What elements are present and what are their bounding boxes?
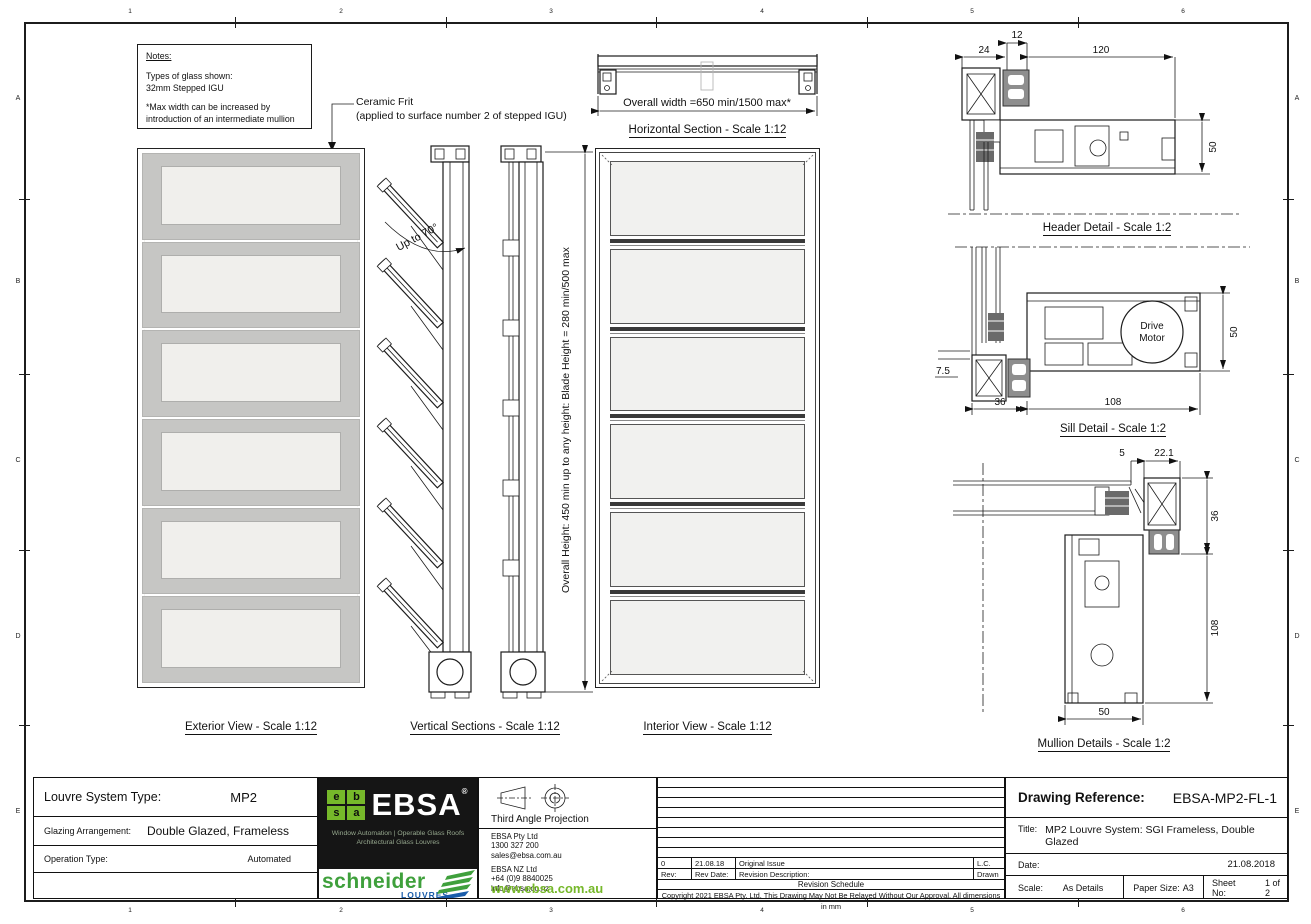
- rev-number: 0: [658, 858, 692, 869]
- scale-label: Scale:: [1006, 883, 1043, 893]
- svg-text:5: 5: [1119, 448, 1125, 459]
- grid-col-label: 1: [124, 8, 136, 15]
- operation-value: Automated: [108, 854, 317, 864]
- notes-line: Types of glass shown:: [146, 71, 303, 82]
- notes-title: Notes:: [146, 51, 303, 62]
- vision-glass: [161, 432, 341, 491]
- open-blade: [377, 338, 444, 430]
- revision-empty-row: [658, 808, 1004, 818]
- header-detail-label: Header Detail - Scale 1:2: [1007, 222, 1207, 234]
- mullion-details-label: Mullion Details - Scale 1:2: [1004, 738, 1204, 750]
- grid-row-label: A: [12, 95, 24, 102]
- revision-row-0: 0 21.08.18 Original Issue L.C.: [658, 858, 1004, 869]
- sill-detail-label: Sill Detail - Scale 1:2: [1013, 423, 1213, 435]
- louvre-blade: [142, 419, 360, 506]
- drawing-reference-label: Drawing Reference:: [1006, 790, 1145, 805]
- contact-au-name: EBSA Pty Ltd: [491, 832, 562, 841]
- grid-row-label: C: [1291, 457, 1303, 464]
- svg-text:120: 120: [1093, 45, 1110, 56]
- title-label: Title:: [1006, 824, 1037, 834]
- grid-tick: [446, 17, 447, 28]
- sheet-no-label: Sheet No:: [1204, 878, 1251, 898]
- svg-text:12: 12: [1011, 30, 1023, 41]
- ebsa-glyph-logo: eb sa: [327, 790, 365, 820]
- grid-col-label: 5: [966, 907, 978, 914]
- grid-tick: [1283, 550, 1294, 551]
- rev-by: L.C.: [974, 858, 1004, 869]
- revision-empty-row: [658, 778, 1004, 788]
- louvre-blade: [142, 153, 360, 240]
- grid-tick: [1078, 17, 1079, 28]
- overall-width-dim: Overall width =650 min/1500 max*: [623, 97, 792, 109]
- svg-text:50: 50: [1098, 707, 1110, 718]
- louvre-blade: [142, 508, 360, 595]
- grid-row-label: B: [12, 278, 24, 285]
- horizontal-section-label: Horizontal Section - Scale 1:12: [590, 124, 825, 136]
- svg-text:36: 36: [1210, 510, 1221, 522]
- glazing-label: Glazing Arrangement:: [34, 826, 131, 836]
- grid-col-label: 2: [335, 8, 347, 15]
- operation-label: Operation Type:: [34, 854, 108, 864]
- revision-empty-row: [658, 798, 1004, 808]
- svg-text:22.1: 22.1: [1154, 448, 1174, 459]
- revision-empty-row: [658, 838, 1004, 848]
- svg-text:7.5: 7.5: [936, 366, 950, 377]
- horizontal-section-drawing: Overall width =650 min/1500 max*: [590, 48, 825, 123]
- overall-height-label: Overall Height: 450 min up to any height…: [560, 160, 575, 680]
- grid-col-label: 4: [756, 8, 768, 15]
- svg-text:50: 50: [1229, 326, 1240, 338]
- vision-glass: [161, 166, 341, 225]
- drawn-label: Drawn: [974, 869, 1004, 880]
- revision-header-row: Rev: Rev Date: Revision Description: Dra…: [658, 869, 1004, 880]
- svg-text:108: 108: [1105, 397, 1122, 408]
- grid-col-label: 4: [756, 907, 768, 914]
- grid-col-label: 3: [545, 8, 557, 15]
- grid-row-label: D: [1291, 633, 1303, 640]
- reference-block: Drawing Reference: EBSA-MP2-FL-1 Title: …: [1005, 777, 1288, 899]
- grid-col-label: 3: [545, 907, 557, 914]
- notes-line: introduction of an intermediate mullion: [146, 114, 303, 125]
- grid-col-label: 1: [124, 907, 136, 914]
- open-blade: [377, 258, 444, 350]
- notes-box: Notes: Types of glass shown: 32mm Steppe…: [137, 44, 312, 129]
- rev-date: 21.08.18: [692, 858, 736, 869]
- grid-tick: [1283, 725, 1294, 726]
- revision-schedule-caption: Revision Schedule: [658, 880, 1004, 890]
- open-blade: [377, 498, 444, 590]
- notes-line: 32mm Stepped IGU: [146, 83, 303, 94]
- drive-motor-label: Drive: [1140, 321, 1164, 332]
- ebsa-wordmark: EBSA®: [371, 787, 468, 823]
- interior-view-label: Interior View - Scale 1:12: [595, 721, 820, 733]
- vision-glass: [161, 521, 341, 580]
- drive-motor-label: Motor: [1139, 333, 1165, 344]
- svg-text:36: 36: [994, 397, 1006, 408]
- mullion-details-drawing: 5 22.1: [945, 443, 1275, 743]
- svg-text:50: 50: [1208, 141, 1219, 153]
- scale-value: As Details: [1063, 883, 1104, 893]
- projection-contact-block: Third Angle Projection EBSA Pty Ltd 1300…: [478, 777, 657, 899]
- louvre-system-label: Louvre System Type:: [34, 790, 161, 804]
- louvre-blade: [142, 596, 360, 683]
- titleblock-left: Louvre System Type: MP2 Glazing Arrangem…: [33, 777, 318, 899]
- grid-col-label: 6: [1177, 8, 1189, 15]
- grid-tick: [19, 374, 30, 375]
- ebsa-tagline1: Window Automation | Operable Glass Roofs: [319, 829, 477, 838]
- third-angle-projection-icon: [497, 784, 597, 812]
- paper-size-label: Paper Size:: [1133, 883, 1180, 893]
- glazing-value: Double Glazed, Frameless: [131, 824, 317, 838]
- vision-glass: [161, 255, 341, 314]
- rev-description: Original Issue: [736, 858, 974, 869]
- grid-tick: [235, 17, 236, 28]
- rev-desc-label: Revision Description:: [736, 869, 974, 880]
- louvre-blade: [142, 242, 360, 329]
- svg-text:108: 108: [1210, 619, 1221, 636]
- schneider-stripes-icon: [435, 870, 475, 899]
- ebsa-tagline2: Architectural Glass Louvres: [319, 838, 477, 847]
- svg-text:24: 24: [978, 45, 990, 56]
- header-detail-drawing: 12 24 120: [940, 28, 1252, 218]
- grid-row-label: D: [12, 633, 24, 640]
- grid-tick: [1283, 374, 1294, 375]
- open-blade: [377, 418, 444, 510]
- sill-detail-drawing: Drive Motor 7.5 36 108 50: [930, 243, 1255, 423]
- vertical-sections-label: Vertical Sections - Scale 1:12: [373, 721, 597, 733]
- vision-glass: [161, 343, 341, 402]
- title-value: MP2 Louvre System: SGI Frameless, Double…: [1037, 824, 1287, 848]
- grid-tick: [656, 17, 657, 28]
- grid-tick: [19, 725, 30, 726]
- exterior-view-label: Exterior View - Scale 1:12: [137, 721, 365, 733]
- grid-row-label: E: [1291, 808, 1303, 815]
- paper-size-value: A3: [1183, 883, 1194, 893]
- rev-date-label: Rev Date:: [692, 869, 736, 880]
- mitre-corners: [600, 153, 815, 683]
- grid-tick: [19, 550, 30, 551]
- revision-empty-row: [658, 828, 1004, 838]
- louvre-system-value: MP2: [161, 790, 317, 805]
- drawing-sheet: 1 2 3 4 5 6 1 2 3 4 5 6 A B C D E A B C …: [0, 0, 1311, 924]
- copyright-note: Copyright 2021 EBSA Pty. Ltd. This Drawi…: [658, 890, 1004, 901]
- revision-block: 0 21.08.18 Original Issue L.C. Rev: Rev …: [657, 777, 1005, 899]
- contact-nz-name: EBSA NZ Ltd: [491, 865, 562, 874]
- date-value: 21.08.2018: [1040, 859, 1287, 870]
- rev-label: Rev:: [658, 869, 692, 880]
- contact-au-email: sales@ebsa.com.au: [491, 851, 562, 860]
- revision-empty-row: [658, 818, 1004, 828]
- contact-au-phone: 1300 327 200: [491, 841, 562, 850]
- date-label: Date:: [1006, 860, 1040, 870]
- exterior-view: [137, 148, 365, 688]
- drawing-reference-value: EBSA-MP2-FL-1: [1145, 790, 1287, 806]
- ebsa-website: www.ebsa.com.au: [491, 881, 603, 896]
- revision-empty-row: [658, 848, 1004, 858]
- grid-col-label: 5: [966, 8, 978, 15]
- grid-row-label: B: [1291, 278, 1303, 285]
- sheet-no-value: 1 of 2: [1265, 878, 1287, 898]
- revision-empty-row: [658, 788, 1004, 798]
- projection-label: Third Angle Projection: [491, 814, 589, 825]
- grid-row-label: E: [12, 808, 24, 815]
- louvre-blade: [142, 330, 360, 417]
- vision-glass: [161, 609, 341, 668]
- notes-line: *Max width can be increased by: [146, 102, 303, 113]
- grid-tick: [1283, 199, 1294, 200]
- grid-tick: [19, 199, 30, 200]
- grid-row-label: C: [12, 457, 24, 464]
- grid-col-label: 6: [1177, 907, 1189, 914]
- interior-view: [595, 148, 820, 688]
- ebsa-logo-block: eb sa EBSA® Window Automation | Operable…: [318, 777, 478, 899]
- grid-tick: [867, 17, 868, 28]
- grid-col-label: 2: [335, 907, 347, 914]
- grid-row-label: A: [1291, 95, 1303, 102]
